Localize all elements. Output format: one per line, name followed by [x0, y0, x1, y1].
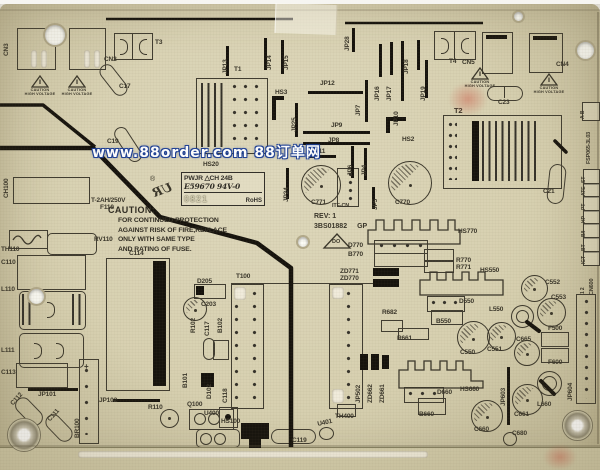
silkscreen-label: C770	[395, 200, 410, 207]
silkscreen-label: T1	[234, 67, 241, 74]
silkscreen-label: +	[84, 363, 89, 371]
silkscreen-label: F110	[100, 205, 114, 212]
silkscreen-label: CN5	[462, 60, 475, 67]
silkscreen-label: JP25	[292, 117, 299, 132]
silkscreen-label: B770	[348, 252, 363, 259]
pcb-photo: CAUTION HIGH VOLTAGE CAUTION HIGH VOLTAG…	[0, 0, 600, 470]
silkscreen-label: JP604	[568, 383, 575, 401]
silkscreen-label: CN2	[104, 57, 117, 64]
silkscreen-label: 1 2	[581, 287, 586, 294]
silkscreen-label: U401	[317, 419, 333, 428]
silkscreen-label: T3	[155, 40, 162, 47]
silkscreen-label: F500	[548, 326, 562, 333]
silkscreen-label: L550	[489, 307, 503, 314]
silkscreen-label: C111	[47, 408, 61, 423]
silkscreen-label: R682	[382, 310, 397, 317]
silkscreen-labels: CN2T3C17T1T4CN5CN4C23T2C21HS3JP12JP9JP8J…	[0, 4, 600, 470]
silkscreen-label: CN4	[556, 62, 569, 69]
silkscreen-label: ZD662	[368, 384, 375, 403]
silkscreen-label: JP16	[375, 86, 382, 101]
silkscreen-label: C112	[10, 392, 25, 407]
silkscreen-label: JP24	[284, 187, 291, 202]
silkscreen-label: C118	[223, 388, 230, 403]
silkscreen-label: HS2	[402, 137, 414, 144]
silkscreen-label: Q100	[187, 402, 202, 409]
silkscreen-label: D550	[459, 299, 474, 306]
silkscreen-label: JP18	[404, 59, 411, 74]
silkscreen-label: ITF-CN	[332, 204, 349, 210]
silkscreen-label: JP10	[394, 111, 401, 126]
silkscreen-label: R110	[148, 405, 163, 412]
silkscreen-label: C660	[474, 427, 489, 434]
silkscreen-label: B101	[183, 373, 190, 388]
silkscreen-label: C119	[292, 438, 307, 445]
silkscreen-label: JP13	[223, 59, 230, 74]
silkscreen-label: T100	[236, 274, 250, 281]
silkscreen-label: JP8	[328, 138, 339, 145]
silkscreen-label: BR100	[75, 419, 82, 438]
silkscreen-label: JP12	[320, 81, 335, 88]
silkscreen-label: C21	[543, 189, 554, 196]
silkscreen-label: C661	[514, 412, 529, 419]
silkscreen-label: JP6	[348, 165, 355, 176]
silkscreen-label: F600	[548, 360, 562, 367]
silkscreen-label: B660	[419, 412, 434, 419]
silkscreen-label: JP603	[501, 388, 508, 406]
silkscreen-label: TH400	[335, 414, 354, 421]
silkscreen-label: JP5	[373, 199, 380, 210]
silkscreen-label: D660	[437, 390, 452, 397]
silkscreen-label: JP19	[421, 86, 428, 101]
silkscreen-label: ZD770	[340, 276, 359, 283]
silkscreen-label: C23	[498, 100, 509, 107]
silkscreen-label: R661	[397, 336, 412, 343]
silkscreen-label: CN3	[4, 43, 11, 56]
silkscreen-label: C551	[487, 347, 502, 354]
silkscreen-label: B102	[218, 318, 225, 333]
silkscreen-label: C552	[545, 280, 560, 287]
silkscreen-label: C17	[119, 84, 130, 91]
silkscreen-label: C117	[205, 321, 212, 336]
silkscreen-label: ZD661	[380, 384, 387, 403]
silkscreen-label: D102	[207, 384, 214, 399]
silkscreen-label: C550	[460, 350, 475, 357]
silkscreen-label: CN600	[590, 279, 596, 295]
silkscreen-label: C113	[1, 370, 16, 377]
silkscreen-label: L111	[1, 348, 15, 355]
silkscreen-label: U400	[204, 411, 219, 418]
silkscreen-label: C771	[311, 200, 326, 207]
silkscreen-label: C553	[551, 295, 566, 302]
silkscreen-label: JP9	[331, 123, 342, 130]
silkscreen-label: JP102	[99, 398, 117, 405]
silkscreen-label: HS550	[480, 268, 499, 275]
silkscreen-label: JP7	[356, 105, 363, 116]
silkscreen-label: HS100	[221, 419, 240, 426]
silkscreen-label: R102	[191, 318, 198, 333]
silkscreen-label: CH100	[4, 179, 11, 198]
silkscreen-label: T4	[449, 59, 456, 66]
silkscreen-label: RV110	[94, 237, 113, 244]
watermark: www.88order.com 88订单网	[92, 142, 321, 162]
silkscreen-label: JP502	[356, 385, 363, 403]
silkscreen-label: JP15	[284, 55, 291, 70]
tape-strip	[274, 3, 337, 35]
silkscreen-label: C680	[512, 431, 527, 438]
silkscreen-label: JP101	[38, 392, 56, 399]
silkscreen-label: JP28	[345, 36, 352, 51]
silkscreen-label: HS3	[275, 90, 287, 97]
silkscreen-label: D205	[197, 279, 212, 286]
qc-stamp	[543, 444, 577, 470]
silkscreen-label: HS660	[460, 387, 479, 394]
silkscreen-label: C203	[201, 302, 216, 309]
silkscreen-label: R771	[456, 265, 471, 272]
silkscreen-label: C110	[1, 260, 16, 267]
silkscreen-label: L110	[1, 287, 15, 294]
silkscreen-label: C114	[129, 251, 144, 258]
silkscreen-label: B550	[436, 319, 451, 326]
silkscreen-label: JP4	[362, 165, 369, 176]
silkscreen-label: JP14	[267, 55, 274, 70]
silkscreen-label: JP17	[387, 86, 394, 101]
silkscreen-label: L660	[537, 402, 551, 409]
pcb-board: CAUTION HIGH VOLTAGE CAUTION HIGH VOLTAG…	[0, 4, 600, 470]
qc-stamp	[448, 82, 488, 116]
silkscreen-label: TH110	[1, 247, 19, 254]
silkscreen-label: C665	[516, 337, 531, 344]
silkscreen-label: D770	[348, 243, 363, 250]
silkscreen-label: HS20	[203, 162, 219, 169]
silkscreen-label: -	[85, 430, 88, 439]
silkscreen-label: HS770	[458, 229, 477, 236]
